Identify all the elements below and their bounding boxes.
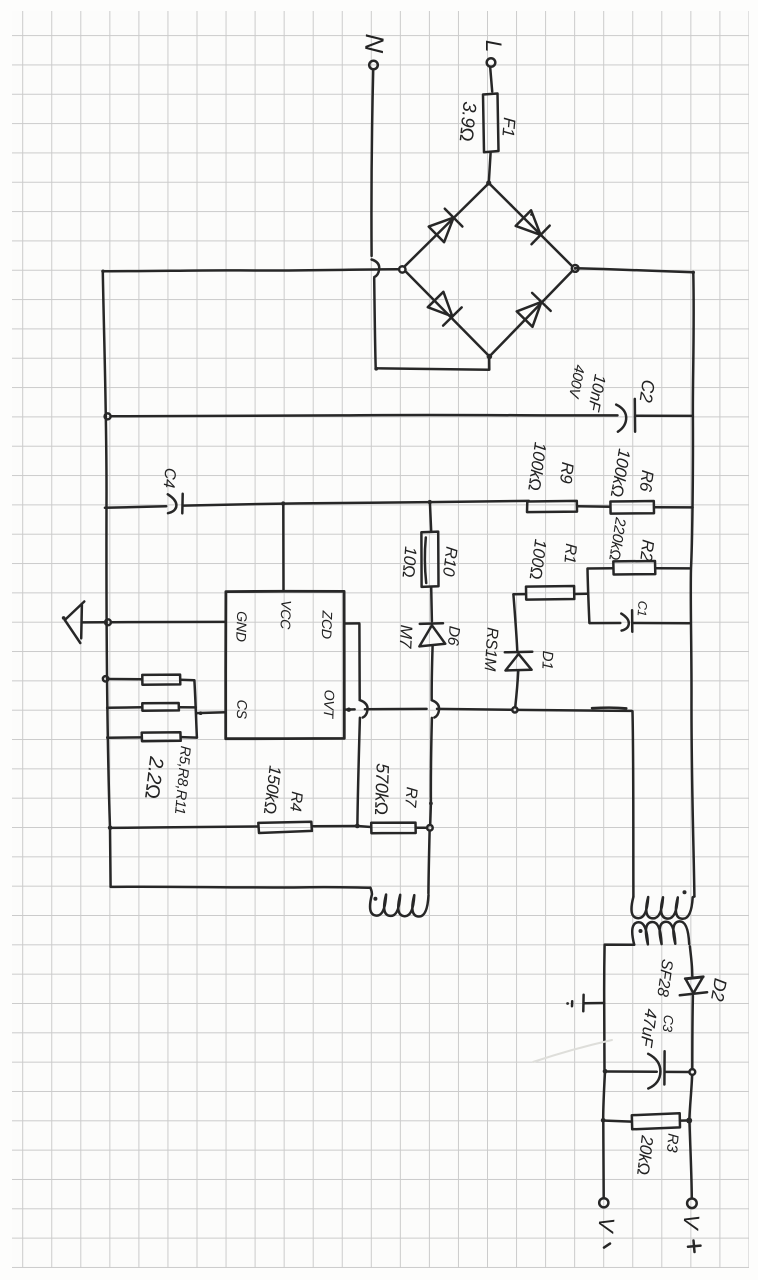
svg-text:C3: C3 [660,1014,676,1033]
svg-text:GND: GND [233,611,250,642]
svg-text:L: L [481,40,506,52]
svg-text:R4: R4 [286,791,305,813]
svg-text:R1: R1 [560,543,579,564]
svg-text:M7: M7 [396,624,416,649]
svg-text:R6: R6 [636,469,658,493]
svg-text:RS1M: RS1M [481,627,501,673]
svg-text:D2: D2 [707,977,731,1003]
svg-text:10Ω: 10Ω [399,546,421,579]
svg-text:R10: R10 [439,546,461,579]
svg-text:OVT: OVT [321,689,338,719]
svg-text:CS: CS [234,699,251,719]
svg-text:R2: R2 [636,539,658,563]
svg-text:C2: C2 [636,378,659,403]
svg-text:C1: C1 [635,600,650,617]
svg-text:R3: R3 [663,1133,682,1154]
svg-text:R9: R9 [556,461,577,485]
svg-text:VCC: VCC [277,600,294,631]
svg-text:N: N [359,33,390,54]
svg-text:F1: F1 [498,117,519,138]
svg-text:C4: C4 [160,467,179,489]
svg-text:3.9Ω: 3.9Ω [455,100,480,142]
svg-text:D6: D6 [444,625,463,646]
svg-text:R7: R7 [401,786,420,809]
svg-text:D1: D1 [538,650,556,669]
svg-text:570kΩ: 570kΩ [371,763,393,816]
svg-text:ZCD: ZCD [319,609,336,639]
